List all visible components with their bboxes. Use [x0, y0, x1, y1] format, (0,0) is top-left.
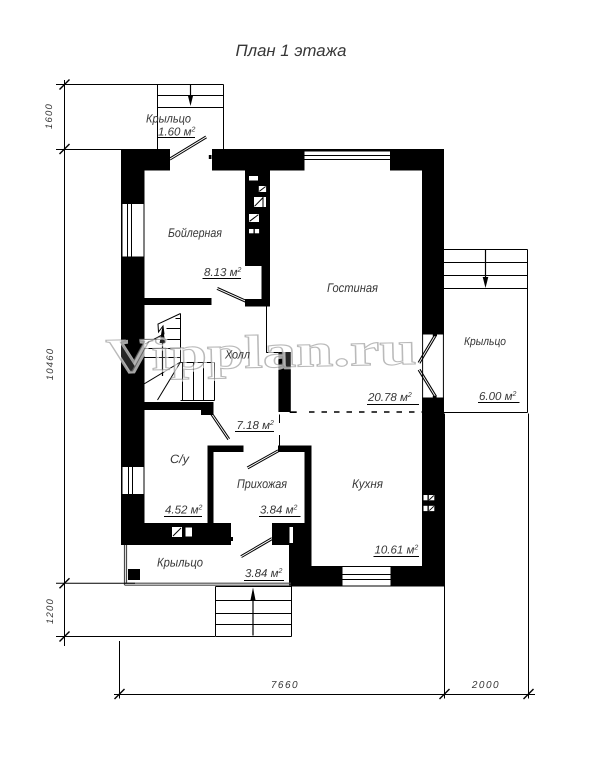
svg-text:Кухня: Кухня	[352, 477, 383, 491]
svg-text:С/у: С/у	[170, 452, 190, 466]
svg-text:Прихожая: Прихожая	[237, 477, 287, 491]
svg-text:10.61 м2: 10.61 м2	[375, 545, 419, 557]
svg-text:Крыльцо: Крыльцо	[464, 336, 507, 348]
svg-text:Бойлерная: Бойлерная	[168, 226, 222, 240]
svg-text:Гостиная: Гостиная	[327, 281, 378, 295]
svg-text:7.18 м2: 7.18 м2	[237, 420, 274, 432]
svg-text:6.00 м2: 6.00 м2	[479, 391, 516, 403]
svg-text:Крыльцо: Крыльцо	[146, 112, 191, 126]
svg-text:3.84 м2: 3.84 м2	[245, 568, 282, 580]
svg-text:1.60 м2: 1.60 м2	[158, 127, 195, 139]
svg-text:2000: 2000	[471, 680, 500, 691]
svg-text:3.84 м2: 3.84 м2	[260, 505, 297, 517]
svg-text:Холл: Холл	[224, 348, 250, 362]
svg-text:4.52 м2: 4.52 м2	[165, 505, 202, 517]
svg-text:Крыльцо: Крыльцо	[157, 556, 203, 570]
svg-text:1200: 1200	[45, 598, 56, 624]
svg-text:План 1 этажа: План 1 этажа	[236, 42, 347, 60]
svg-text:8.13 м2: 8.13 м2	[204, 267, 241, 279]
svg-text:20.78 м2: 20.78 м2	[367, 392, 412, 404]
svg-text:Vipplan.ru: Vipplan.ru	[105, 323, 417, 382]
svg-text:7660: 7660	[271, 680, 299, 691]
svg-text:1600: 1600	[44, 103, 55, 129]
svg-text:10460: 10460	[45, 348, 56, 380]
